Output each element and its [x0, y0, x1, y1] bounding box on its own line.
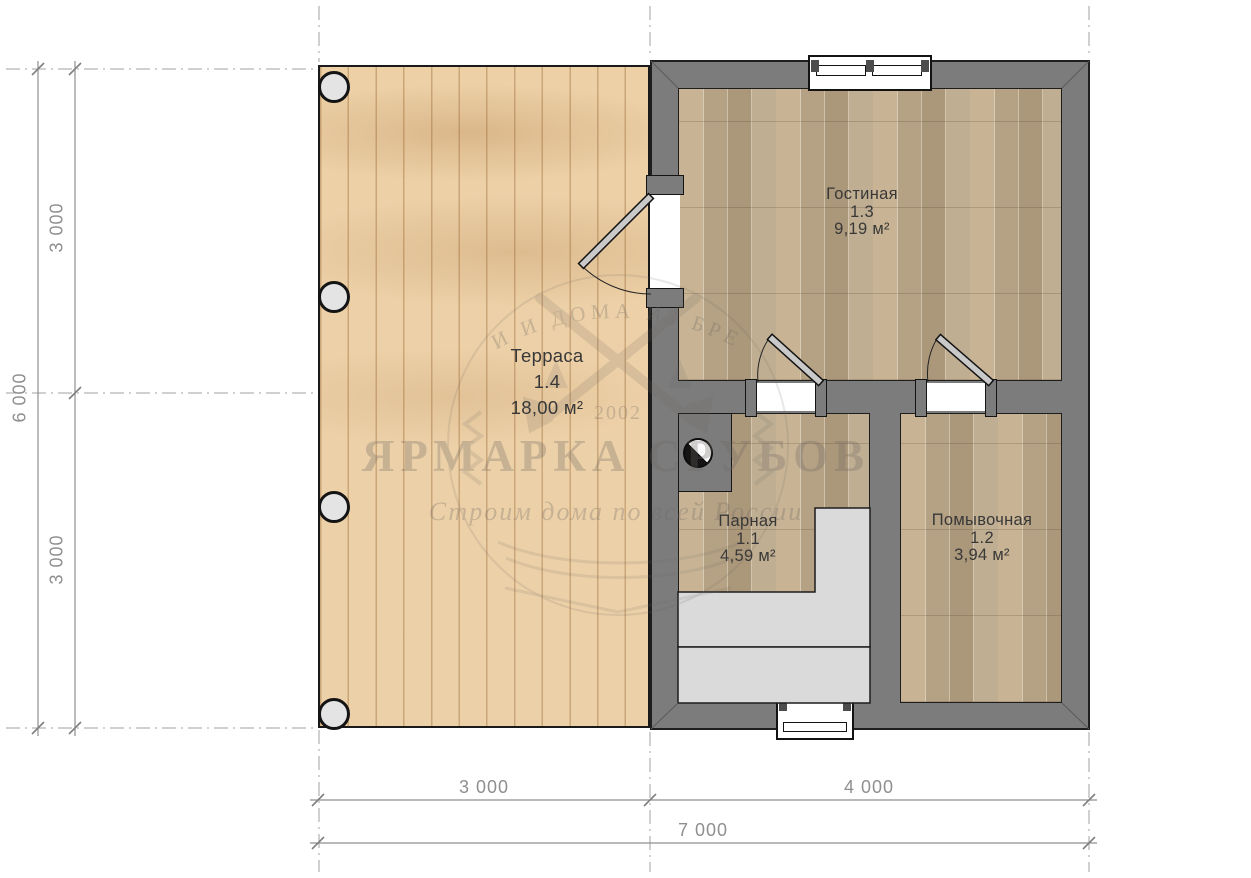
- room-area: 4,59 м²: [658, 548, 838, 566]
- room-number: 1.4: [457, 369, 637, 395]
- svg-text:БАНИ И ДОМА ИЗ БРЕВНА: БАНИ И ДОМА ИЗ БРЕВНА: [0, 0, 746, 354]
- room-number: 1.2: [892, 530, 1072, 548]
- dim-bottom-left: 3 000: [424, 777, 544, 798]
- room-name: Терраса: [457, 343, 637, 369]
- dim-bottom-total: 7 000: [643, 820, 763, 841]
- room-label-terrace: Терраса 1.4 18,00 м²: [457, 343, 637, 421]
- room-area: 18,00 м²: [457, 395, 637, 421]
- room-name: Гостиная: [772, 186, 952, 204]
- room-label-steam: Парная 1.1 4,59 м²: [658, 513, 838, 566]
- dim-left-top: 3 000: [47, 168, 68, 288]
- dim-left-total: 6 000: [10, 338, 31, 458]
- room-area: 3,94 м²: [892, 547, 1072, 565]
- room-number: 1.3: [772, 204, 952, 222]
- dim-left-bottom: 3 000: [47, 500, 68, 620]
- room-name: Помывочная: [892, 512, 1072, 530]
- watermark-title: ЯРМАРКА СРУБОВ: [362, 431, 870, 481]
- watermark: БАНИ И ДОМА ИЗ БРЕВНА 2002 ЯРМАРКА СРУБО…: [0, 0, 1251, 878]
- room-name: Парная: [658, 513, 838, 531]
- floor-plan-canvas: БАНИ И ДОМА ИЗ БРЕВНА 2002 ЯРМАРКА СРУБО…: [0, 0, 1251, 878]
- room-area: 9,19 м²: [772, 221, 952, 239]
- dim-bottom-right: 4 000: [809, 777, 929, 798]
- room-number: 1.1: [658, 531, 838, 549]
- watermark-arc-text: БАНИ И ДОМА ИЗ БРЕВНА: [0, 0, 746, 354]
- room-label-washing: Помывочная 1.2 3,94 м²: [892, 512, 1072, 565]
- room-label-living: Гостиная 1.3 9,19 м²: [772, 186, 952, 239]
